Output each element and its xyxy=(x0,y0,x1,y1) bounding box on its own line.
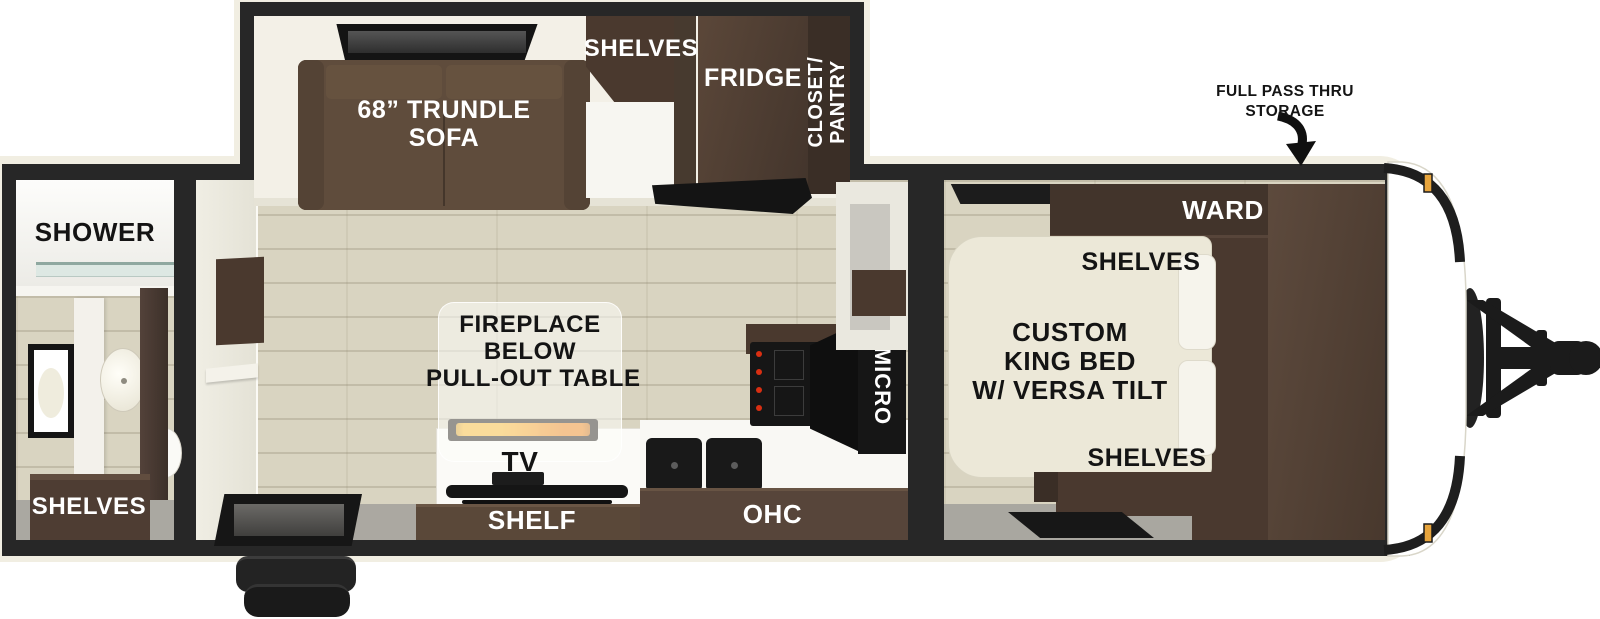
bathroom-door-panel xyxy=(216,257,264,346)
rv-floorplan: SHOWER SHELVES 68” TRUNDLE SOFA SHELVES … xyxy=(0,0,1600,619)
shelf-label: SHELF xyxy=(416,506,648,535)
fridge-label: FRIDGE xyxy=(698,64,808,92)
burner-knobs xyxy=(756,351,762,357)
sink-drain xyxy=(121,378,127,384)
pullout-table-label: FIREPLACE BELOW PULL-OUT TABLE xyxy=(426,312,634,393)
slideout-window xyxy=(330,24,544,60)
sofa-label: 68” TRUNDLE SOFA xyxy=(318,96,570,152)
front-wardrobe-panel xyxy=(1268,184,1385,540)
mirror-sink-reflection xyxy=(38,368,64,418)
bed-label-line2: KING BED xyxy=(1004,346,1136,376)
stairwell-tread xyxy=(234,504,344,536)
slideout-window-glass xyxy=(348,31,526,53)
ward-label: WARD xyxy=(1158,196,1288,225)
shower-glass-door xyxy=(36,262,174,277)
storage-label-line1: FULL PASS THRU xyxy=(1216,83,1354,100)
bedroom-shelves-bottom-label: SHELVES xyxy=(1072,444,1222,472)
entry-step-lower xyxy=(244,584,350,617)
bedroom-shelves-top-label: SHELVES xyxy=(1066,248,1216,276)
bathroom-mirror xyxy=(28,344,74,438)
tv-icon xyxy=(446,485,628,498)
closet-label-line1: CLOSET/ xyxy=(805,57,827,148)
entry-stairwell xyxy=(214,494,362,546)
pass-thru-storage-label: FULL PASS THRU STORAGE xyxy=(1190,82,1380,122)
bed-foot-cabinet xyxy=(1056,472,1212,516)
bathroom-divider-wall xyxy=(74,298,104,502)
table-label-line1: FIREPLACE xyxy=(459,311,600,338)
table-label-line2: BELOW xyxy=(484,338,576,365)
sofa-label-line2: SOFA xyxy=(409,124,479,152)
closet-label-line2: PANTRY xyxy=(827,60,849,144)
faucet-dot xyxy=(671,462,678,469)
faucet-dot xyxy=(731,462,738,469)
sofa-label-line1: 68” TRUNDLE xyxy=(357,96,530,124)
slideout-counter-white xyxy=(586,102,674,198)
burner-grate-bottom xyxy=(774,386,804,416)
shower-label: SHOWER xyxy=(16,218,174,247)
hitch-a-frame xyxy=(1456,288,1600,428)
bed-foot-box xyxy=(1034,472,1058,502)
bedroom-window xyxy=(946,184,1066,204)
table-label-line3: PULL-OUT TABLE xyxy=(426,365,641,392)
bathroom-shelves-label: SHELVES xyxy=(24,494,154,521)
kitchen-sink-right xyxy=(706,438,762,492)
living-left-wall xyxy=(196,180,258,540)
closet-pantry-label: CLOSET/ PANTRY xyxy=(805,22,853,182)
hall-cabinet xyxy=(852,270,906,316)
clearance-light-bottom xyxy=(1424,524,1432,542)
bathroom-tall-cabinet xyxy=(140,288,168,500)
sofa-back-cushion-right xyxy=(446,65,562,99)
burner-grate-top xyxy=(774,350,804,380)
ohc-label: OHC xyxy=(700,500,845,529)
kitchen-sink-left xyxy=(646,438,702,492)
bed-label-line3: W/ VERSA TILT xyxy=(972,375,1168,405)
bed-label-line1: CUSTOM xyxy=(1012,317,1128,347)
storage-label-line2: STORAGE xyxy=(1245,103,1324,120)
king-bed-label: CUSTOM KING BED W/ VERSA TILT xyxy=(950,318,1190,405)
sofa-back-cushion-left xyxy=(326,65,442,99)
clearance-light-top xyxy=(1424,174,1432,192)
slideout-shelves-label: SHELVES xyxy=(574,36,708,63)
tv-pedestal xyxy=(492,472,544,485)
fridge xyxy=(698,16,808,194)
